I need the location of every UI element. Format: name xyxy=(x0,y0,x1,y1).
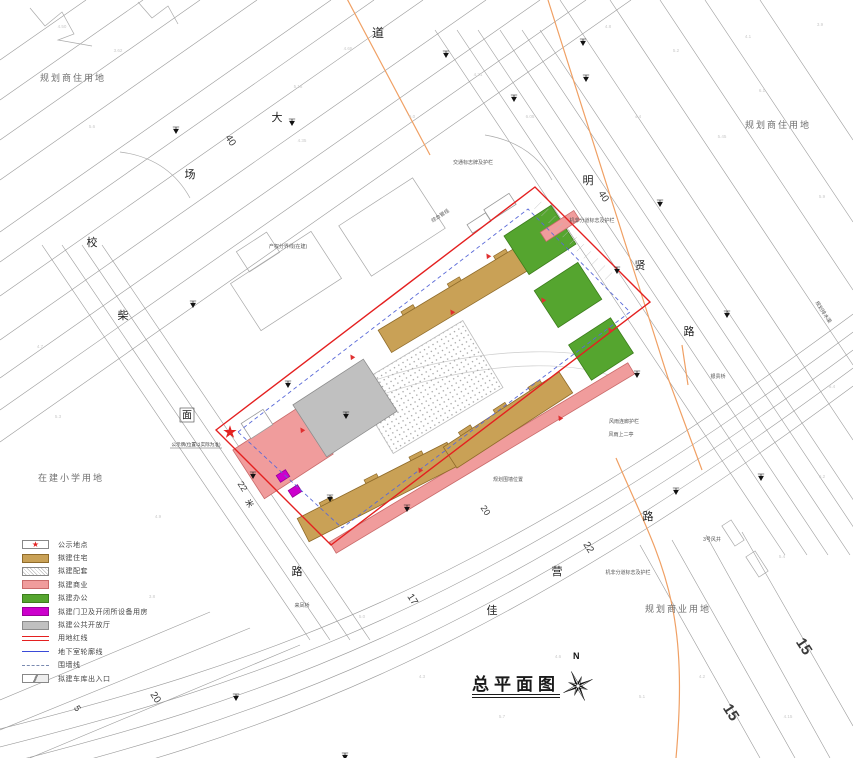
svg-text:5.9: 5.9 xyxy=(819,194,826,199)
legend: ★公示地点拟建住宅拟建配套拟建商业拟建办公拟建门卫及开闭所设备用房拟建公共开放厅… xyxy=(22,538,148,685)
annotation-labels: 机非分道标志及护栏交通标志牌及护栏综合管线银贵桥规划排水渠机非分道标志及护栏来凤… xyxy=(170,159,833,609)
legend-item: 围墙线 xyxy=(22,659,148,672)
svg-text:5.18: 5.18 xyxy=(294,84,303,89)
svg-text:5.45: 5.45 xyxy=(718,134,727,139)
svg-text:3号风井: 3号风井 xyxy=(703,536,721,543)
svg-text:场: 场 xyxy=(185,167,196,181)
north-label: N xyxy=(573,651,580,661)
svg-text:6.4: 6.4 xyxy=(829,384,836,389)
svg-text:6.1: 6.1 xyxy=(759,88,766,93)
vehicle-2 xyxy=(746,551,768,577)
svg-text:6.0: 6.0 xyxy=(409,114,416,119)
legend-item: 拟建商业 xyxy=(22,578,148,591)
svg-text:产权分界线(在建): 产权分界线(在建) xyxy=(269,243,308,250)
svg-text:4.3: 4.3 xyxy=(419,674,426,679)
zone-label-nw: 规划商住用地 xyxy=(40,71,106,84)
svg-text:22: 22 xyxy=(580,540,596,556)
legend-label: 拟建配套 xyxy=(58,566,88,576)
svg-text:4.15: 4.15 xyxy=(784,714,793,719)
svg-text:4.50: 4.50 xyxy=(58,24,67,29)
legend-label: 用地红线 xyxy=(58,633,88,643)
svg-text:5: 5 xyxy=(72,704,83,714)
neighbor-outline-3 xyxy=(236,232,279,272)
legend-item: 地下室轮廓线 xyxy=(22,645,148,658)
svg-text:4.6: 4.6 xyxy=(555,654,562,659)
svg-text:5.1: 5.1 xyxy=(639,694,646,699)
svg-text:路: 路 xyxy=(643,510,654,523)
legend-label: 围墙线 xyxy=(58,660,81,670)
office-block-2 xyxy=(534,262,602,327)
svg-text:贤: 贤 xyxy=(635,259,646,272)
legend-swatch-gatehouse xyxy=(22,607,49,616)
svg-text:机非分道标志及护栏: 机非分道标志及护栏 xyxy=(605,569,650,576)
svg-text:3.62: 3.62 xyxy=(114,48,123,53)
svg-text:机非分道标志及护栏: 机非分道标志及护栏 xyxy=(569,217,614,224)
svg-text:40: 40 xyxy=(222,133,238,149)
public-notice-star: ★ xyxy=(223,424,237,441)
legend-label: 拟建商业 xyxy=(58,580,88,590)
legend-swatch-dashline xyxy=(22,665,49,666)
legend-label: 拟建门卫及开闭所设备用房 xyxy=(58,607,148,617)
legend-item: 拟建门卫及开闭所设备用房 xyxy=(22,605,148,618)
svg-text:风雨上二亭: 风雨上二亭 xyxy=(608,431,633,438)
svg-text:路: 路 xyxy=(292,565,303,578)
legend-item: 拟建住宅 xyxy=(22,551,148,564)
svg-text:道: 道 xyxy=(372,26,384,40)
legend-swatch-redline xyxy=(22,636,49,641)
vehicle-1 xyxy=(722,520,744,546)
legend-label: 地下室轮廓线 xyxy=(58,647,103,657)
legend-swatch-blueline xyxy=(22,651,49,652)
zone-label-se: 规划商业用地 xyxy=(645,602,711,615)
svg-text:交通标志牌及护栏: 交通标志牌及护栏 xyxy=(453,159,493,166)
site-plan-canvas: ★道大场校柴面米路明贤路佳营路4040221722202051515机非分道标志… xyxy=(0,0,853,758)
svg-text:4.8: 4.8 xyxy=(605,24,612,29)
svg-text:3.8: 3.8 xyxy=(149,594,156,599)
svg-text:4.21: 4.21 xyxy=(474,72,483,77)
svg-text:风雨连廊护栏: 风雨连廊护栏 xyxy=(609,418,639,425)
legend-swatch-commercial xyxy=(22,580,49,589)
legend-swatch-office xyxy=(22,594,49,603)
legend-label: 拟建办公 xyxy=(58,593,88,603)
legend-swatch-public xyxy=(22,621,49,630)
svg-text:3.9: 3.9 xyxy=(817,22,824,27)
svg-text:明: 明 xyxy=(583,174,594,187)
svg-text:5.3: 5.3 xyxy=(55,414,62,419)
legend-swatch-residential xyxy=(22,554,49,563)
svg-text:4.4: 4.4 xyxy=(635,114,642,119)
svg-text:4.7: 4.7 xyxy=(37,344,44,349)
svg-text:20: 20 xyxy=(479,503,493,517)
legend-label: 拟建公共开放厅 xyxy=(58,620,111,630)
svg-text:路: 路 xyxy=(684,325,695,338)
annex-2 xyxy=(484,193,516,220)
svg-text:佳: 佳 xyxy=(487,603,498,617)
legend-label: 拟建车库出入口 xyxy=(58,674,111,684)
legend-swatch-hatch xyxy=(22,567,49,576)
svg-text:大: 大 xyxy=(272,110,283,124)
zone-label-ne: 规划商住用地 xyxy=(745,118,811,131)
svg-text:4.9: 4.9 xyxy=(155,514,162,519)
drawing-title: 总平面图 xyxy=(472,670,560,695)
svg-text:17: 17 xyxy=(404,592,420,608)
legend-swatch-star: ★ xyxy=(22,540,49,549)
svg-text:来凤桥: 来凤桥 xyxy=(294,602,309,609)
svg-text:柴: 柴 xyxy=(118,308,129,322)
svg-text:4.1: 4.1 xyxy=(745,34,752,39)
gatehouse-2 xyxy=(288,485,302,498)
legend-item: 拟建车库出入口 xyxy=(22,672,148,685)
zone-label-w: 在建小学用地 xyxy=(38,471,104,484)
legend-label: 拟建住宅 xyxy=(58,553,88,563)
legend-label: 公示地点 xyxy=(58,540,88,550)
north-compass xyxy=(563,671,592,700)
road-names: 道大场校柴面米路明贤路佳营路 xyxy=(87,26,695,617)
svg-text:4.65: 4.65 xyxy=(344,46,353,51)
svg-text:22: 22 xyxy=(236,479,250,493)
legend-item: 拟建公共开放厅 xyxy=(22,618,148,631)
buildings xyxy=(230,178,768,577)
legend-item: 拟建配套 xyxy=(22,565,148,578)
svg-text:5.2: 5.2 xyxy=(673,48,680,53)
svg-text:★: ★ xyxy=(223,424,237,441)
svg-text:4.2: 4.2 xyxy=(699,674,706,679)
svg-text:银贵桥: 银贵桥 xyxy=(710,373,725,380)
legend-item: 拟建办公 xyxy=(22,592,148,605)
legend-swatch-garage xyxy=(22,674,49,683)
svg-text:5.0: 5.0 xyxy=(359,614,366,619)
legend-item: 用地红线 xyxy=(22,632,148,645)
svg-text:4.35: 4.35 xyxy=(298,138,307,143)
svg-text:6.2: 6.2 xyxy=(819,474,826,479)
svg-text:规划围墙位置: 规划围墙位置 xyxy=(493,476,523,483)
svg-text:5.7: 5.7 xyxy=(499,714,506,719)
svg-text:6.05: 6.05 xyxy=(526,114,535,119)
road-width-numbers: 4040221722202051515 xyxy=(72,133,815,724)
svg-text:5.4: 5.4 xyxy=(779,554,786,559)
legend-item: ★公示地点 xyxy=(22,538,148,551)
svg-text:5.6: 5.6 xyxy=(89,124,96,129)
svg-text:面: 面 xyxy=(182,411,192,422)
svg-text:公示牌(位置以实际为准): 公示牌(位置以实际为准) xyxy=(172,441,221,448)
svg-text:校: 校 xyxy=(87,235,98,249)
neighbor-outline-2 xyxy=(339,178,445,276)
svg-text:营: 营 xyxy=(552,564,563,578)
